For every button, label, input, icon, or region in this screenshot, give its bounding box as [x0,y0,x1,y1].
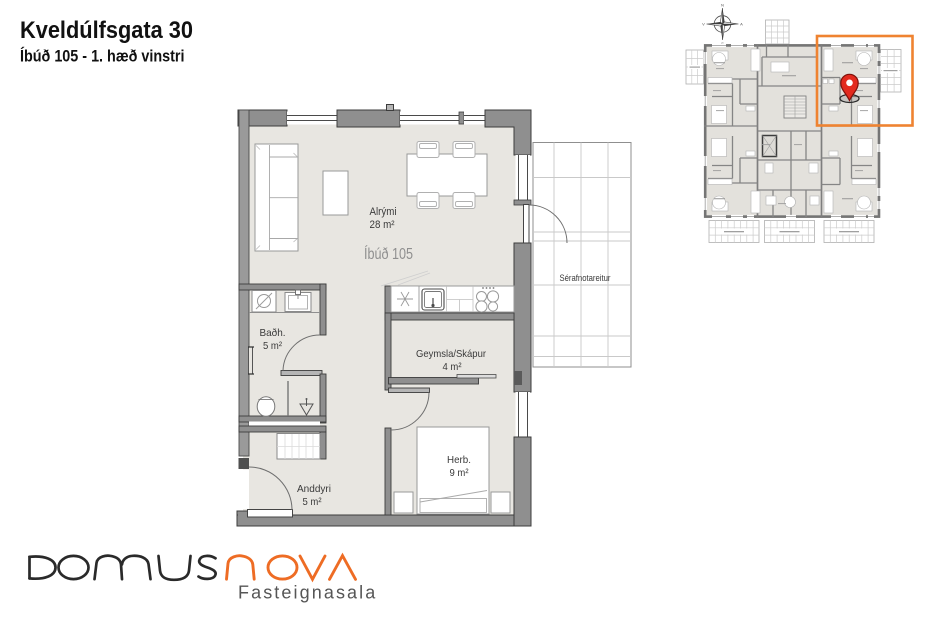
svg-text:N: N [721,3,724,8]
svg-text:Kveldúlfsgata 30: Kveldúlfsgata 30 [20,17,193,44]
svg-text:Alrými: Alrými [370,206,397,218]
svg-text:5 m²: 5 m² [303,496,322,508]
svg-text:Fasteignasala: Fasteignasala [238,583,377,603]
svg-text:Anddyri: Anddyri [297,483,331,495]
svg-text:Herb.: Herb. [447,454,471,466]
svg-text:9 m²: 9 m² [450,467,469,479]
svg-text:Geymsla/Skápur: Geymsla/Skápur [416,348,486,360]
svg-text:Íbúð 105 - 1. hæð vinstri: Íbúð 105 - 1. hæð vinstri [20,47,185,66]
svg-text:28 m²: 28 m² [370,219,395,231]
svg-text:A: A [740,22,743,27]
svg-text:Baðh.: Baðh. [260,327,286,339]
svg-text:5 m²: 5 m² [263,340,282,352]
svg-text:4 m²: 4 m² [443,361,462,373]
svg-text:V: V [702,22,705,27]
svg-text:Sérafnotareitur: Sérafnotareitur [560,273,611,284]
svg-text:Íbúð 105: Íbúð 105 [364,244,413,263]
